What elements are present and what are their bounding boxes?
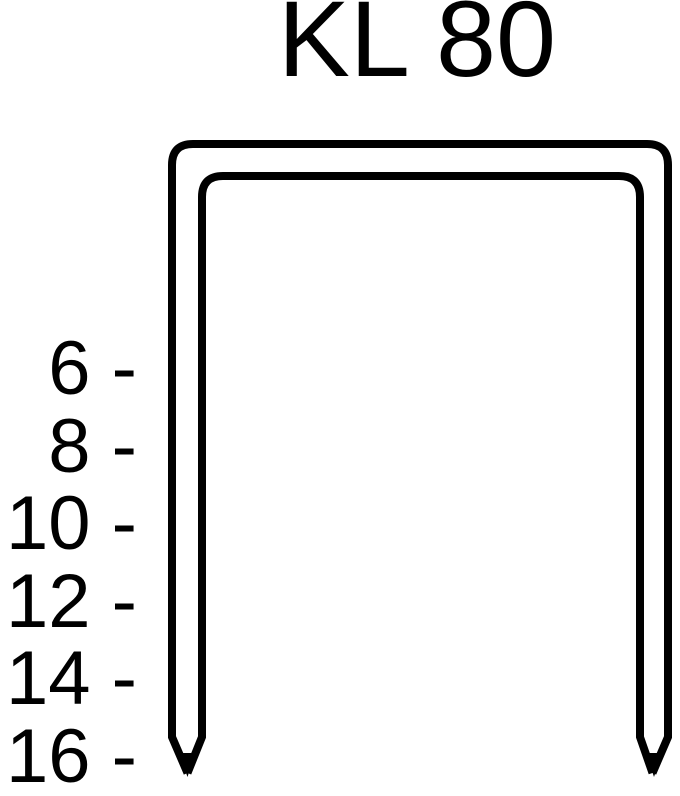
size-tick-label: 14 -: [0, 640, 137, 718]
staple-outer-contour: [172, 144, 668, 773]
staple-inner-contour: [188, 176, 653, 773]
size-tick-label: 10 -: [0, 485, 137, 563]
size-tick-label: 6 -: [0, 330, 137, 408]
size-tick-label: 8 -: [0, 408, 137, 486]
diagram-canvas: KL 80 6 - 8 - 10 - 12 - 14 - 16 -: [0, 0, 680, 796]
size-tick-label: 16 -: [0, 718, 137, 796]
size-tick-label: 12 -: [0, 563, 137, 641]
size-scale: 6 - 8 - 10 - 12 - 14 - 16 -: [0, 330, 137, 795]
